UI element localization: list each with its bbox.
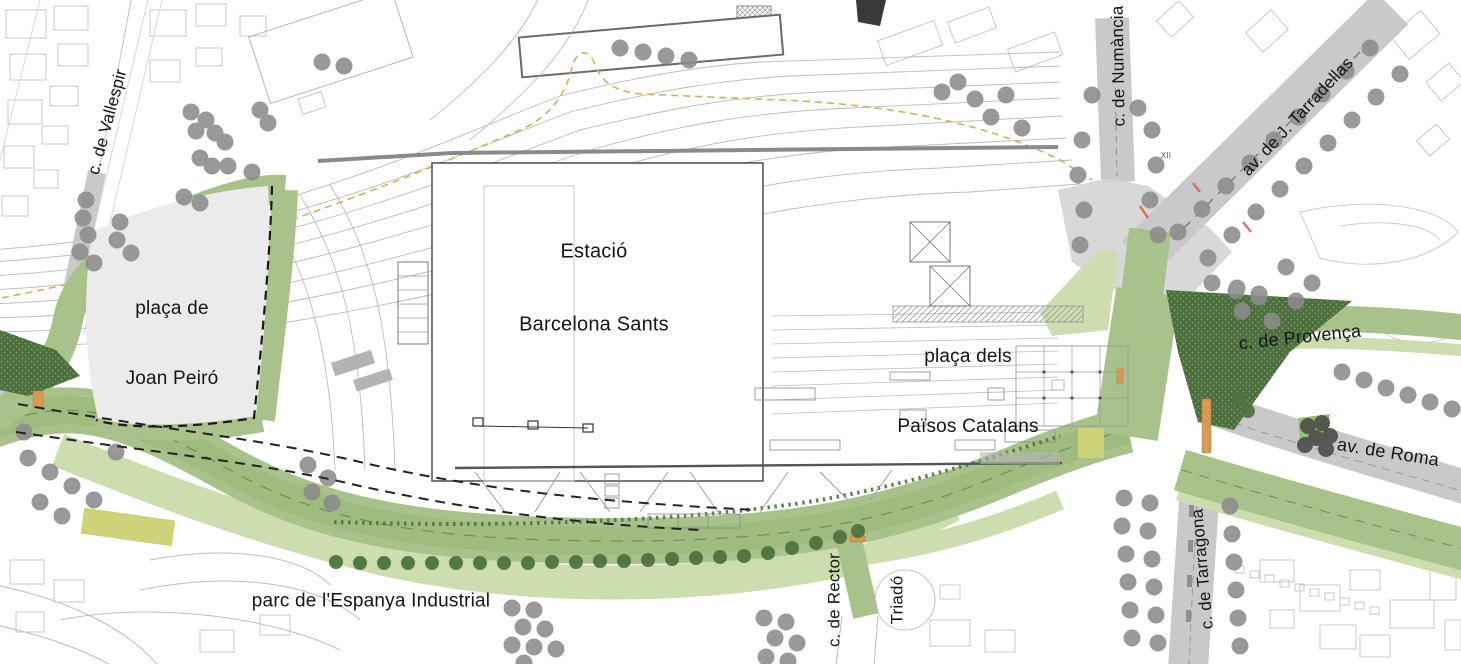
tree-icon bbox=[1224, 526, 1241, 543]
tree-icon bbox=[1070, 167, 1087, 184]
tree-icon bbox=[260, 115, 277, 132]
tree-icon bbox=[1334, 364, 1351, 381]
tree-icon bbox=[64, 478, 81, 495]
tree-icon bbox=[756, 610, 773, 627]
tree-icon bbox=[504, 637, 521, 654]
stop-platform bbox=[1202, 399, 1211, 453]
tree-icon bbox=[998, 87, 1015, 104]
tree-icon bbox=[617, 554, 631, 568]
stop-platform bbox=[1117, 368, 1123, 384]
tree-icon bbox=[635, 44, 652, 61]
tree-icon bbox=[1264, 313, 1281, 330]
tree-icon bbox=[1222, 498, 1239, 515]
tree-icon bbox=[548, 641, 565, 658]
tree-icon bbox=[569, 555, 583, 569]
tree-icon bbox=[1148, 607, 1165, 624]
tree-icon bbox=[78, 192, 95, 209]
tree-icon bbox=[737, 549, 751, 563]
tree-icon bbox=[54, 508, 71, 525]
tree-icon bbox=[1144, 551, 1161, 568]
tree-icon bbox=[112, 214, 129, 231]
tree-icon bbox=[1118, 546, 1135, 563]
tree-icon bbox=[1170, 224, 1187, 241]
tree-icon bbox=[353, 556, 367, 570]
tree-icon bbox=[1014, 120, 1031, 137]
tree-icon bbox=[473, 556, 487, 570]
tree-icon bbox=[1224, 227, 1241, 244]
tree-icon bbox=[1116, 490, 1133, 507]
tree-icon bbox=[967, 91, 984, 108]
label-placa-paisos-catalans: plaça dels Països Catalans bbox=[897, 299, 1038, 461]
tree-icon bbox=[681, 52, 698, 69]
tree-icon bbox=[809, 536, 823, 550]
tree-icon bbox=[80, 227, 97, 244]
tree-icon bbox=[336, 58, 353, 75]
tree-icon bbox=[244, 164, 261, 181]
tree-icon bbox=[641, 553, 655, 567]
tree-icon bbox=[983, 109, 1000, 126]
tree-icon bbox=[1392, 66, 1409, 83]
tree-icon bbox=[1422, 394, 1439, 411]
tree-icon bbox=[314, 54, 331, 71]
tree-icon bbox=[1229, 280, 1246, 297]
tree-icon bbox=[32, 494, 49, 511]
tree-icon bbox=[758, 649, 775, 664]
tree-icon bbox=[515, 619, 532, 636]
tree-icon bbox=[537, 621, 554, 638]
tree-icon bbox=[1368, 89, 1385, 106]
tree-icon bbox=[324, 495, 341, 512]
tree-icon bbox=[1140, 523, 1157, 540]
tree-icon bbox=[1233, 391, 1247, 405]
tree-icon bbox=[1146, 579, 1163, 596]
label-carrer-numancia: c. de Numància bbox=[1108, 5, 1131, 126]
tree-icon bbox=[1114, 518, 1131, 535]
tree-icon bbox=[220, 158, 237, 175]
tree-icon bbox=[1144, 122, 1161, 139]
tree-icon bbox=[1278, 259, 1295, 276]
tree-icon bbox=[1356, 372, 1373, 389]
tree-icon bbox=[304, 484, 321, 501]
tree-icon bbox=[20, 450, 37, 467]
tree-icon bbox=[767, 630, 784, 647]
tree-icon bbox=[329, 555, 343, 569]
yellow-patch-west bbox=[81, 508, 176, 547]
tree-icon bbox=[1251, 286, 1268, 303]
tree-icon bbox=[75, 210, 92, 227]
tree-icon bbox=[1130, 100, 1147, 117]
stop-platform bbox=[33, 391, 43, 407]
tree-icon bbox=[401, 556, 415, 570]
tree-icon bbox=[1444, 401, 1461, 418]
tree-icon bbox=[1288, 293, 1305, 310]
tree-icon bbox=[1226, 554, 1243, 571]
tree-icon bbox=[449, 556, 463, 570]
tree-icon bbox=[176, 189, 193, 206]
tree-icon bbox=[593, 554, 607, 568]
tree-icon bbox=[1142, 192, 1159, 209]
tree-icon bbox=[665, 552, 679, 566]
tree-icon bbox=[526, 639, 543, 656]
tree-icon bbox=[1234, 303, 1251, 320]
label-carrer-rector-triado: c. de Rector Triadó bbox=[783, 553, 928, 647]
tree-icon bbox=[780, 653, 797, 664]
tree-icon bbox=[204, 158, 221, 175]
tree-icon bbox=[1318, 441, 1334, 457]
tree-icon bbox=[521, 556, 535, 570]
tree-icon bbox=[86, 255, 103, 272]
label-xii-marker: XII bbox=[1161, 151, 1171, 161]
tree-icon bbox=[188, 123, 205, 140]
tree-icon bbox=[1378, 380, 1395, 397]
tree-icon bbox=[1076, 202, 1093, 219]
tree-icon bbox=[42, 464, 59, 481]
tree-icon bbox=[1150, 227, 1167, 244]
tree-icon bbox=[1296, 158, 1313, 175]
tree-icon bbox=[1400, 387, 1417, 404]
tree-icon bbox=[425, 556, 439, 570]
tree-icon bbox=[72, 244, 89, 261]
tree-icon bbox=[689, 551, 703, 565]
tree-icon bbox=[950, 74, 967, 91]
tree-icon bbox=[1320, 135, 1337, 152]
tree-icon bbox=[934, 84, 951, 101]
tree-icon bbox=[1072, 237, 1089, 254]
tree-icon bbox=[1120, 574, 1137, 591]
tree-icon bbox=[1200, 250, 1217, 267]
tree-icon bbox=[1272, 181, 1289, 198]
tree-icon bbox=[1124, 630, 1141, 647]
tree-icon bbox=[612, 40, 629, 57]
label-placa-joan-peiro: plaça de Joan Peiró bbox=[126, 251, 219, 413]
tree-icon bbox=[109, 232, 126, 249]
tree-icon bbox=[1218, 178, 1235, 195]
map-canvas: Estació Barcelona Sants plaça de Joan Pe… bbox=[0, 0, 1461, 664]
tree-icon bbox=[217, 134, 234, 151]
tree-icon bbox=[1122, 602, 1139, 619]
green-junction bbox=[1126, 292, 1148, 436]
tree-icon bbox=[516, 655, 533, 664]
label-parc-espanya-industrial: parc de l'Espanya Industrial bbox=[252, 589, 490, 612]
tree-icon bbox=[1241, 404, 1255, 418]
tree-icon bbox=[1362, 40, 1379, 57]
tree-icon bbox=[300, 457, 317, 474]
tree-icon bbox=[497, 556, 511, 570]
tree-icon bbox=[1297, 437, 1313, 453]
road-tarradellas bbox=[1138, 8, 1392, 258]
tree-icon bbox=[183, 104, 200, 121]
tree-icon bbox=[851, 524, 865, 538]
tree-icon bbox=[1230, 610, 1247, 627]
yellow-patch-junction bbox=[1078, 428, 1104, 458]
tree-icon bbox=[658, 48, 675, 65]
tree-icon bbox=[1304, 275, 1321, 292]
tree-icon bbox=[526, 602, 543, 619]
label-estacio-barcelona-sants: Estació Barcelona Sants bbox=[519, 191, 669, 362]
tree-icon bbox=[713, 550, 727, 564]
tree-icon bbox=[1194, 201, 1211, 218]
tree-icon bbox=[1074, 132, 1091, 149]
tree-icon bbox=[1150, 635, 1167, 652]
tree-icon bbox=[833, 530, 847, 544]
tree-icon bbox=[377, 556, 391, 570]
tree-icon bbox=[504, 600, 521, 617]
tree-icon bbox=[192, 195, 209, 212]
tree-icon bbox=[1204, 275, 1221, 292]
tree-icon bbox=[1344, 112, 1361, 129]
tree-icon bbox=[1084, 87, 1101, 104]
tree-icon bbox=[1232, 638, 1249, 655]
tree-icon bbox=[545, 555, 559, 569]
tree-icon bbox=[86, 492, 103, 509]
tree-icon bbox=[1228, 582, 1245, 599]
tree-icon bbox=[1142, 495, 1159, 512]
tree-icon bbox=[761, 546, 775, 560]
tree-icon bbox=[1248, 204, 1265, 221]
